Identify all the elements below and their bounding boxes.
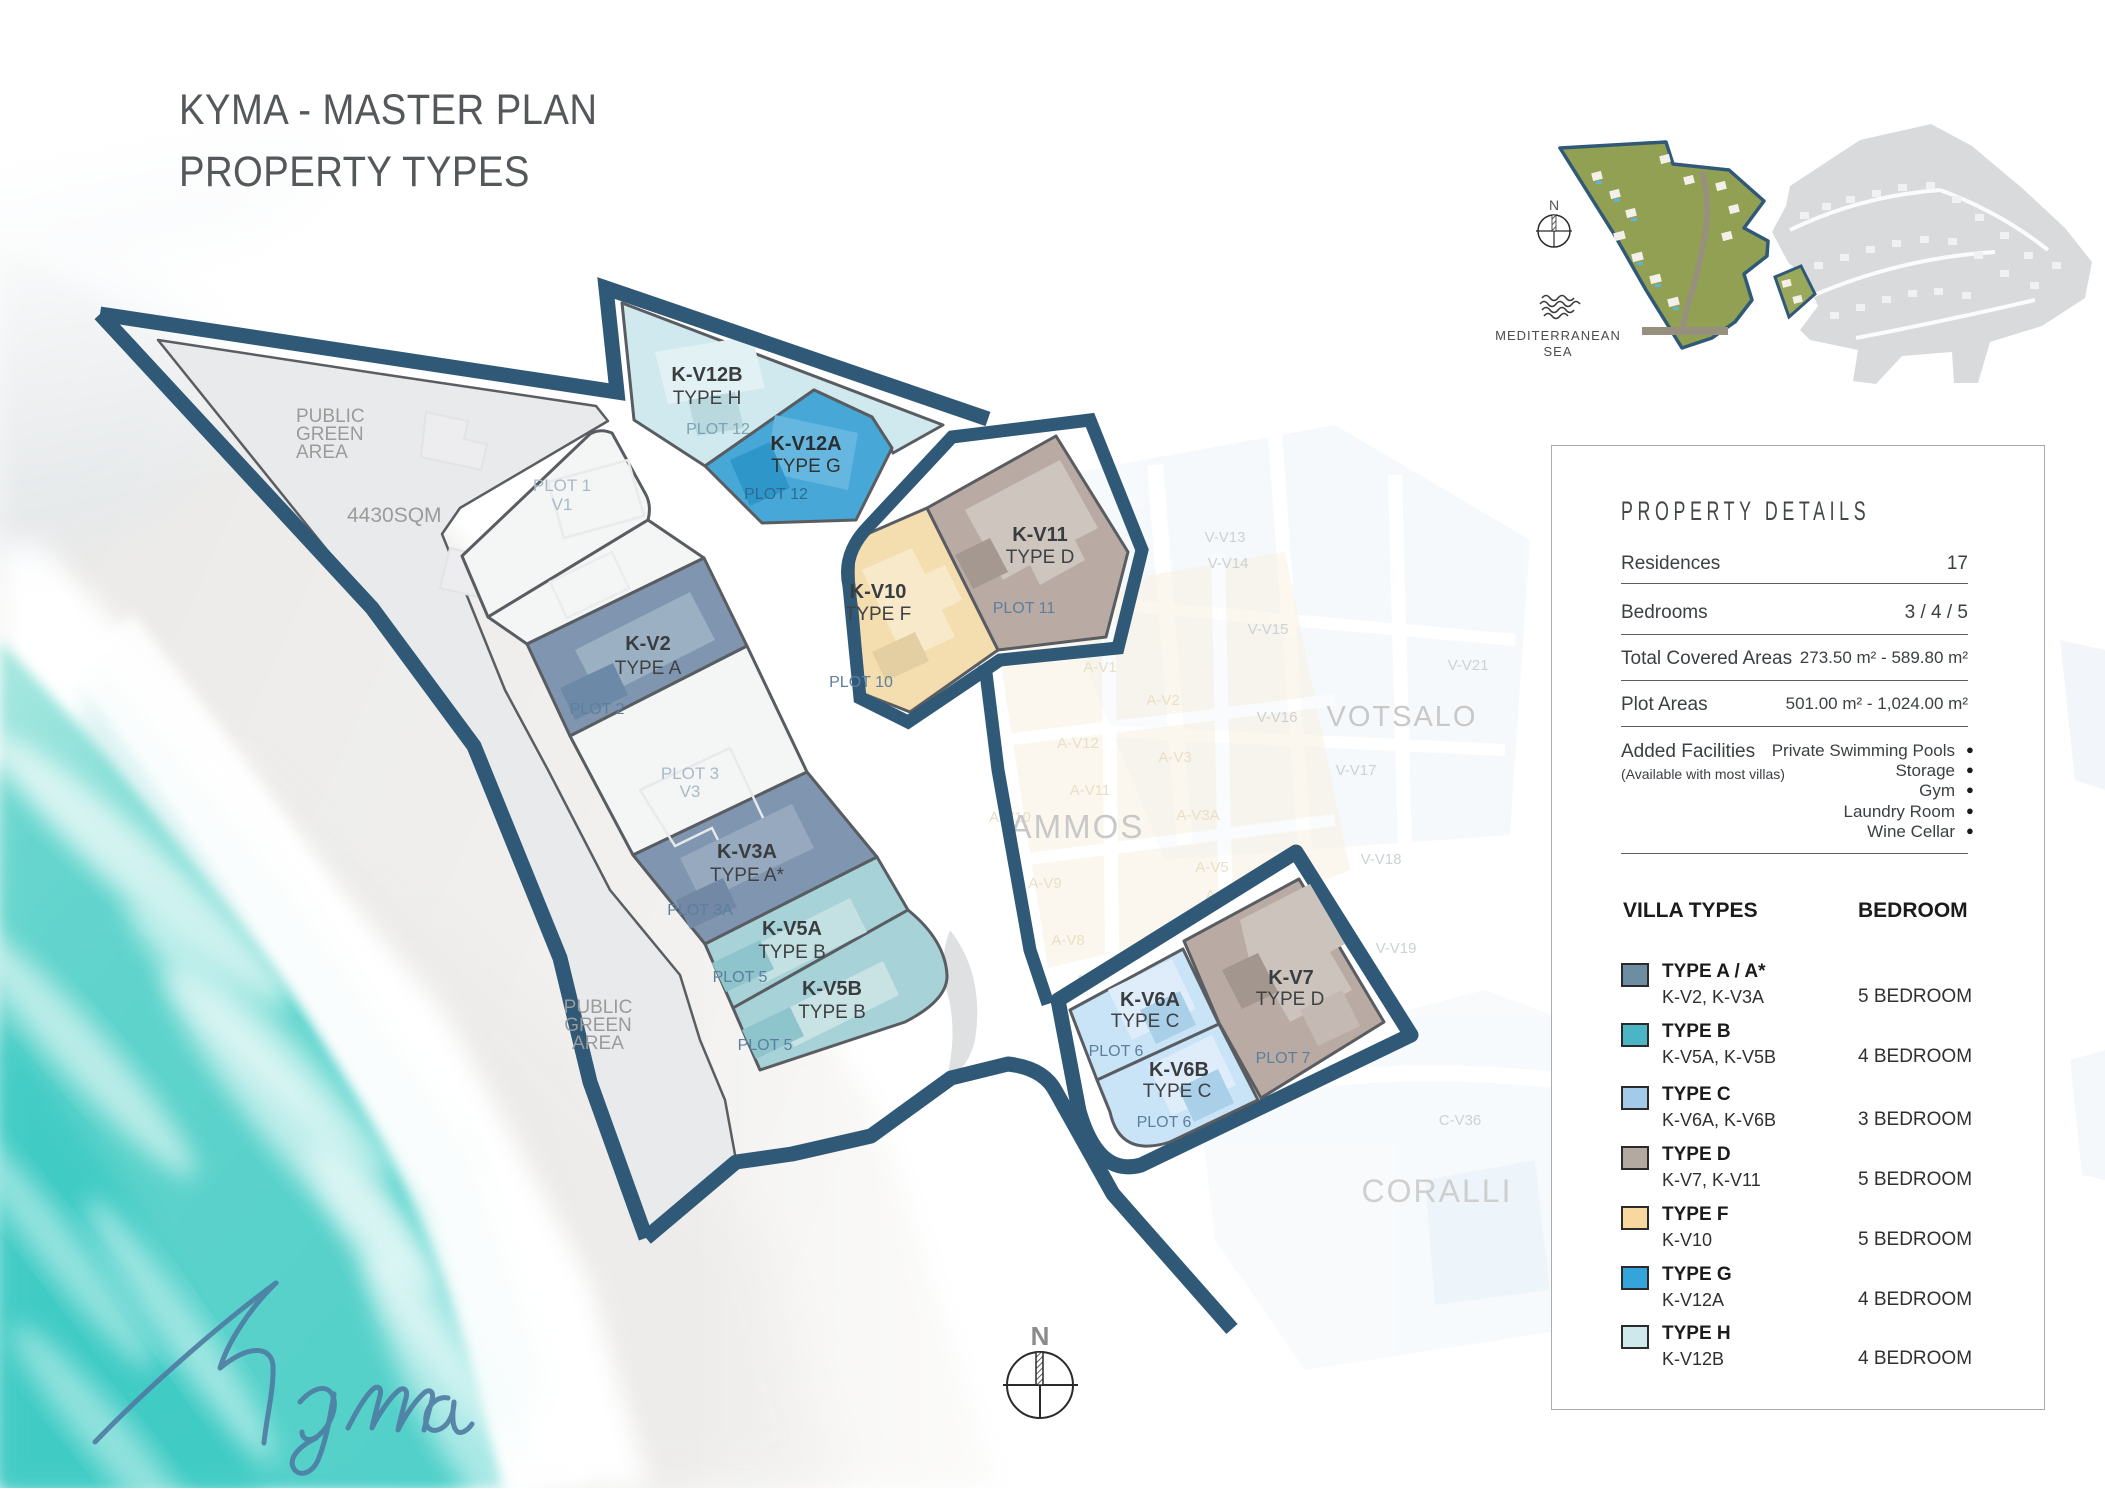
svg-text:4430SQM: 4430SQM [347,504,442,527]
svg-text:SEA: SEA [1543,344,1572,359]
svg-text:V-V19: V-V19 [1376,940,1417,957]
svg-text:TYPE G: TYPE G [771,456,841,477]
svg-text:V-V17: V-V17 [1336,762,1377,779]
svg-text:A-V5: A-V5 [1195,859,1228,876]
svg-text:V-V16: V-V16 [1257,709,1298,726]
svg-text:K-V5B: K-V5B [802,978,862,1000]
svg-text:V-V13: V-V13 [1205,529,1246,546]
svg-text:K-V7: K-V7 [1268,967,1314,989]
svg-text:K-V6B: K-V6B [1149,1059,1209,1081]
svg-text:PLOT 2: PLOT 2 [570,701,625,718]
svg-text:PLOT 5: PLOT 5 [738,1037,793,1054]
svg-text:K-V6A: K-V6A [1120,989,1180,1011]
svg-text:K-V11: K-V11 [1012,524,1068,546]
svg-text:A-V11: A-V11 [1070,782,1111,799]
svg-text:V-V21: V-V21 [1448,657,1489,674]
svg-text:AMMOS: AMMOS [1010,808,1145,845]
svg-text:V3: V3 [680,782,701,801]
svg-text:VOTSALO: VOTSALO [1327,701,1478,733]
svg-text:TYPE B: TYPE B [798,1002,866,1023]
svg-text:K-V5A: K-V5A [762,918,822,940]
svg-text:PLOT 6: PLOT 6 [1137,1114,1192,1131]
svg-text:K-V12B: K-V12B [671,364,742,386]
svg-text:A-V3A: A-V3A [1176,807,1219,824]
svg-text:TYPE C: TYPE C [1111,1011,1180,1032]
svg-text:K-V2: K-V2 [625,633,671,655]
svg-text:K-V3A: K-V3A [717,841,777,863]
svg-text:A-V1: A-V1 [1083,659,1116,676]
svg-text:CORALLI: CORALLI [1362,1173,1513,1209]
svg-text:V1: V1 [552,495,573,514]
svg-text:K-V12A: K-V12A [770,433,841,455]
svg-text:PLOT 1: PLOT 1 [533,476,591,495]
svg-text:AREA: AREA [572,1033,624,1054]
svg-text:A-V12: A-V12 [1057,735,1099,752]
svg-text:MEDITERRANEAN: MEDITERRANEAN [1495,328,1621,343]
svg-text:TYPE C: TYPE C [1143,1081,1212,1102]
svg-text:TYPE F: TYPE F [845,604,912,625]
svg-text:K-V10: K-V10 [850,581,907,603]
svg-text:TYPE A: TYPE A [615,658,682,679]
svg-text:AREA: AREA [296,442,348,463]
svg-text:V-V14: V-V14 [1208,555,1249,572]
svg-text:V-V18: V-V18 [1361,851,1402,868]
svg-text:A-V9: A-V9 [1028,875,1061,892]
svg-text:C-V36: C-V36 [1439,1112,1482,1129]
svg-text:PLOT 6: PLOT 6 [1089,1043,1144,1060]
svg-text:PLOT 11: PLOT 11 [993,600,1056,617]
svg-text:PLOT 12: PLOT 12 [686,421,750,438]
svg-text:PLOT 3: PLOT 3 [661,764,719,783]
svg-text:TYPE D: TYPE D [1006,547,1075,568]
svg-text:A-V8: A-V8 [1051,932,1084,949]
svg-text:PLOT 7: PLOT 7 [1256,1050,1311,1067]
svg-text:A-V3: A-V3 [1158,749,1191,766]
svg-text:TYPE B: TYPE B [758,942,826,963]
svg-text:N: N [1031,1321,1050,1351]
svg-text:N: N [1549,197,1559,213]
svg-text:V-V15: V-V15 [1248,621,1289,638]
svg-text:PLOT 10: PLOT 10 [829,674,893,691]
svg-text:TYPE A*: TYPE A* [710,865,785,886]
svg-text:PLOT 3A: PLOT 3A [667,902,733,919]
svg-text:A-V2: A-V2 [1146,692,1179,709]
svg-text:PLOT 5: PLOT 5 [713,969,768,986]
svg-text:TYPE H: TYPE H [673,388,742,409]
svg-text:PLOT 12: PLOT 12 [744,486,808,503]
svg-text:TYPE D: TYPE D [1256,989,1325,1010]
